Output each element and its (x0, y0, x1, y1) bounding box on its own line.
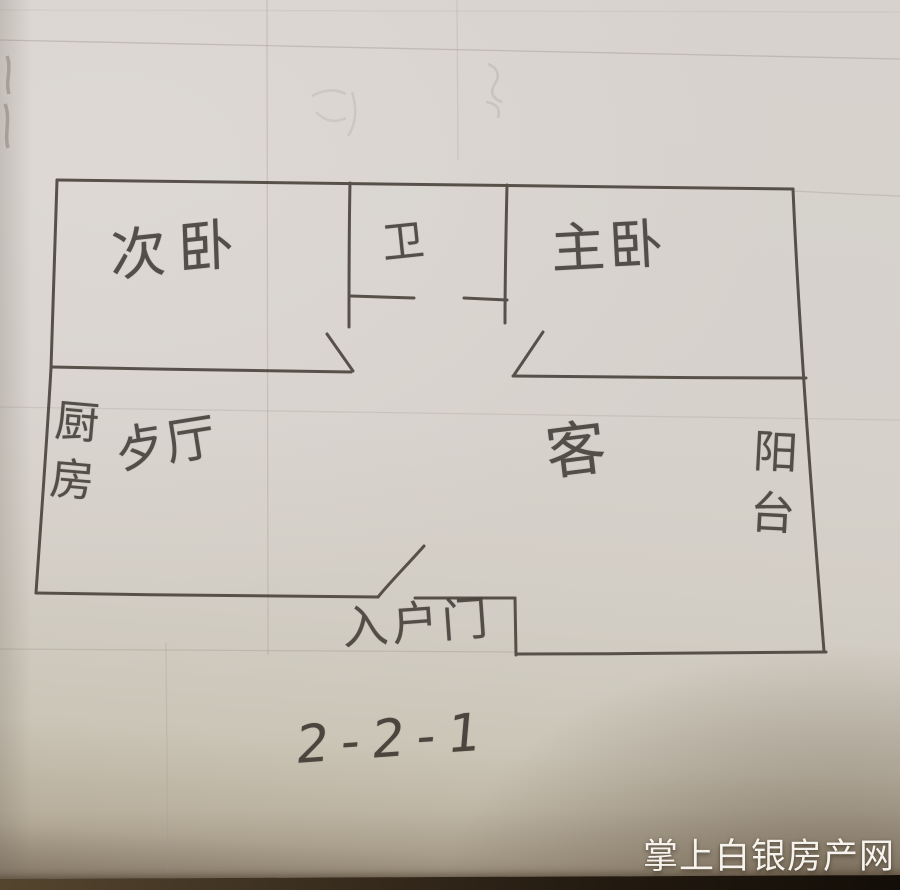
bleed-through-smudges (5, 56, 502, 148)
door-swing-bedroom2 (327, 334, 353, 371)
wall-bedroom2-south (52, 367, 351, 372)
room-label-master-bedroom: 主卧 (550, 216, 669, 279)
smudge-1 (312, 90, 355, 136)
wall-bedroom2-bath-divider (349, 183, 350, 327)
crease-lower (0, 649, 516, 652)
wall-right (793, 189, 824, 651)
crease-vertical-2 (457, 0, 458, 160)
crease-vertical-3 (166, 642, 168, 874)
room-label-living-room: 客 (542, 417, 609, 487)
wall-bottom-left (36, 593, 378, 597)
crease-right-of-plan (793, 191, 900, 196)
wall-bath-master-divider (505, 185, 507, 323)
door-swing-entrance (378, 546, 424, 597)
room-label-balcony: 阳台 (743, 427, 797, 551)
wall-bath-south-right (464, 298, 507, 300)
door-swing-master (514, 332, 543, 375)
room-label-kitchen: 厨房 (41, 396, 97, 516)
crease-middle (0, 407, 900, 420)
layout-code-annotation: 2-2-1 (294, 705, 495, 774)
wall-left (36, 180, 57, 593)
crease-vertical-1 (267, 0, 268, 655)
wall-bath-south-left (351, 296, 414, 298)
floorplan-photo: 次卧 卫 主卧 厨房 歺厅 客 阳台 入户门 2-2-1 掌上白银房产网 (0, 0, 900, 890)
crease-upper (0, 40, 900, 59)
entrance-threshold-side (515, 598, 516, 655)
crease-top (0, 10, 900, 12)
room-label-secondary-bedroom: 次卧 (109, 215, 246, 288)
room-label-entrance-door: 入户门 (340, 594, 493, 653)
wall-bottom-right (516, 652, 826, 654)
wall-top (57, 180, 793, 189)
wall-master-south (513, 376, 806, 378)
left-edge-marks (5, 56, 9, 148)
room-label-bathroom: 卫 (380, 218, 426, 266)
smudge-2 (486, 64, 502, 118)
site-watermark: 掌上白银房产网 (643, 828, 895, 879)
